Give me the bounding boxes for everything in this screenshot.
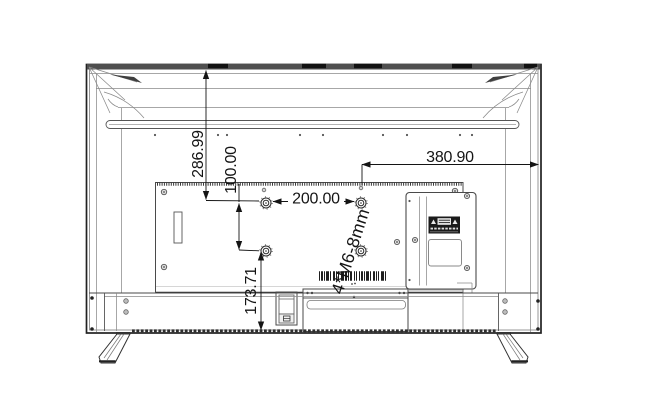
handle-slot xyxy=(174,212,182,243)
stand-foot-left xyxy=(99,332,130,363)
dim-label-top-to-vesa: 286.99 xyxy=(190,130,207,178)
dim-label-vesa-to-bottom: 173.71 xyxy=(243,267,260,315)
connector-slot xyxy=(307,301,406,310)
dim-label-vesa-horizontal: 200.00 xyxy=(292,191,340,208)
power-inlet xyxy=(276,292,297,325)
rating-label xyxy=(429,217,461,234)
pilot-dot-left xyxy=(262,188,266,192)
dim-label-vesa-vertical: 100.00 xyxy=(223,146,240,194)
technical-drawing-page: 286.99 100.00 173.71 200.00 380.90 4*M6-… xyxy=(0,0,652,409)
dim-label-vesa-to-right: 380.90 xyxy=(426,149,474,166)
pilot-dot-right xyxy=(359,186,363,190)
stand-foot-right xyxy=(497,332,528,363)
tv-rear-technical-drawing: 286.99 100.00 173.71 200.00 380.90 4*M6-… xyxy=(0,0,652,409)
top-bezel-band xyxy=(87,64,541,70)
io-compartment xyxy=(394,193,476,290)
spec-label-box xyxy=(429,240,462,267)
